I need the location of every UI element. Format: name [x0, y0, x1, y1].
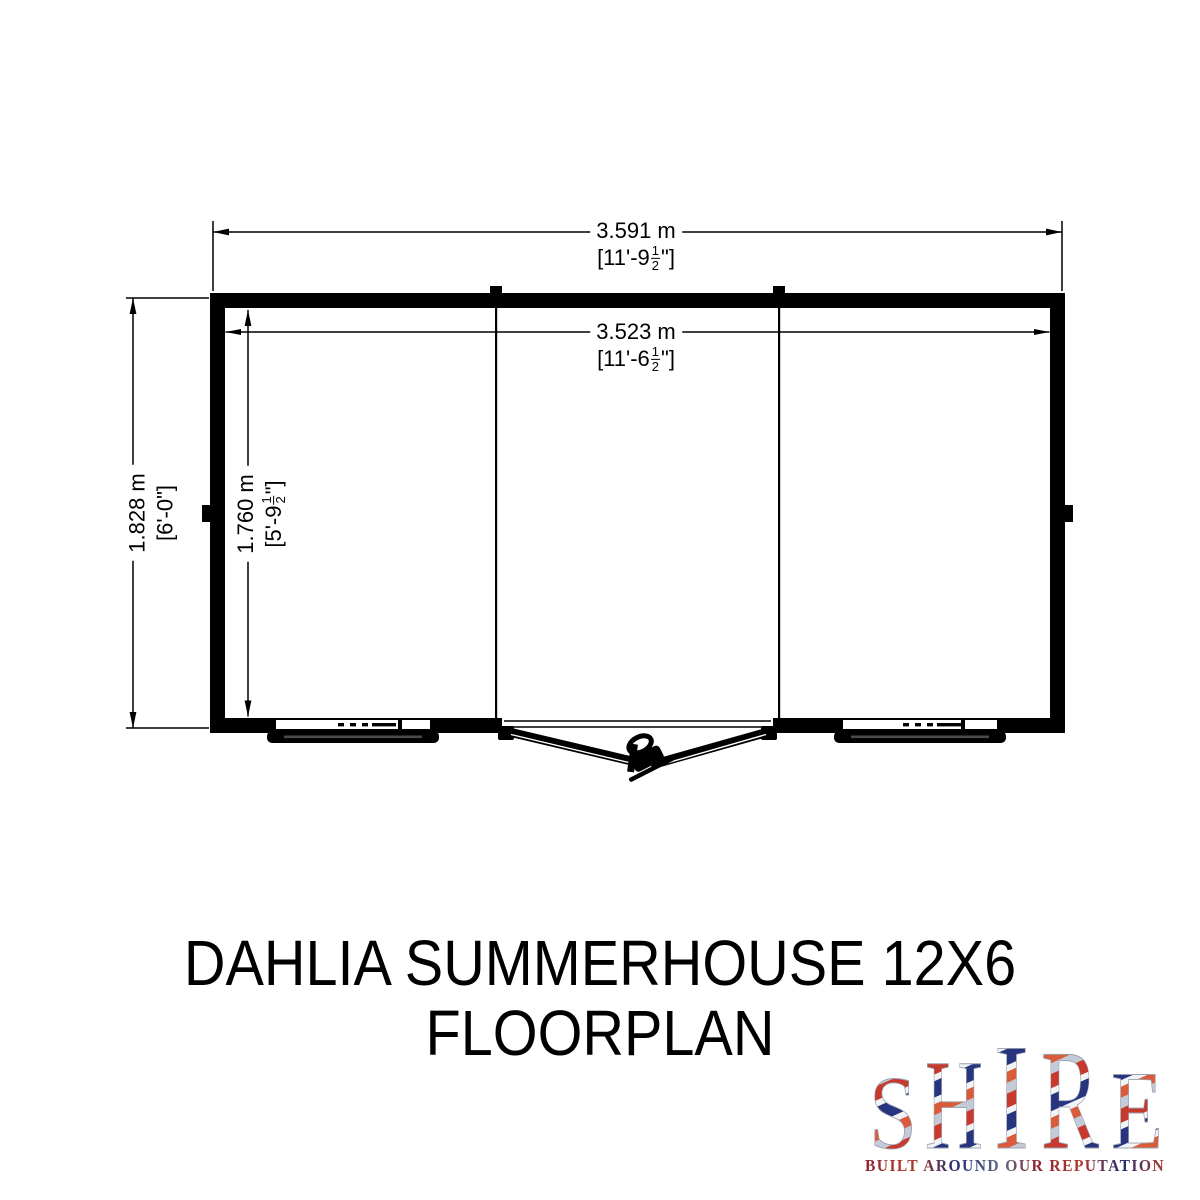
arrowhead	[213, 229, 229, 236]
wall-left	[210, 293, 225, 733]
logo-letter-h: H	[925, 1034, 983, 1176]
arrowhead	[226, 329, 242, 335]
inner-depth-label: 1.760 m [5'-912"]	[230, 466, 290, 562]
arrowhead	[130, 712, 137, 728]
title-line1: DAHLIA SUMMERHOUSE 12X6	[60, 928, 1140, 998]
door-opening	[502, 718, 773, 734]
wall-joint-marker	[1065, 505, 1073, 522]
partition-line	[778, 308, 780, 718]
door-leaf-left	[509, 732, 636, 762]
outer-width-imperial-label: [11'-912"]	[591, 244, 681, 272]
wall-right	[1050, 293, 1065, 733]
window-sill-line	[284, 736, 422, 739]
wall-top	[210, 293, 1065, 308]
inner-width-imperial-label: [11'-612"]	[591, 345, 681, 373]
logo-letter-e: E	[1111, 1049, 1163, 1173]
roof-joint-marker	[773, 286, 785, 294]
logo-letter-s: S	[869, 1054, 917, 1171]
wall-joint-marker	[202, 505, 210, 522]
arrowhead	[245, 310, 252, 326]
page: 3.591 m [11'-912"] 3.523 m [11'-612"] 1.…	[0, 0, 1200, 1200]
partition-line	[495, 308, 497, 718]
arrowhead	[1034, 329, 1050, 335]
arrowhead	[245, 701, 252, 717]
logo-tagline: BUILT AROUND OUR REPUTATION	[865, 1156, 1165, 1175]
outer-depth-label: 1.828 m [6'-0"]	[122, 465, 181, 561]
arrowhead	[1046, 229, 1062, 236]
window-sill-line	[851, 736, 989, 739]
right-window	[834, 720, 1006, 743]
left-window	[267, 720, 439, 743]
double-door	[498, 718, 777, 783]
shire-logo: S H I R E BUILT AROUND OUR REPUTATION	[855, 1030, 1175, 1185]
outer-width-metric-label: 3.591 m	[590, 219, 682, 243]
arrowhead	[130, 298, 137, 314]
door-leaf-left-line	[511, 735, 633, 764]
inner-width-metric-label: 3.523 m	[590, 320, 682, 344]
roof-joint-marker	[490, 286, 502, 294]
